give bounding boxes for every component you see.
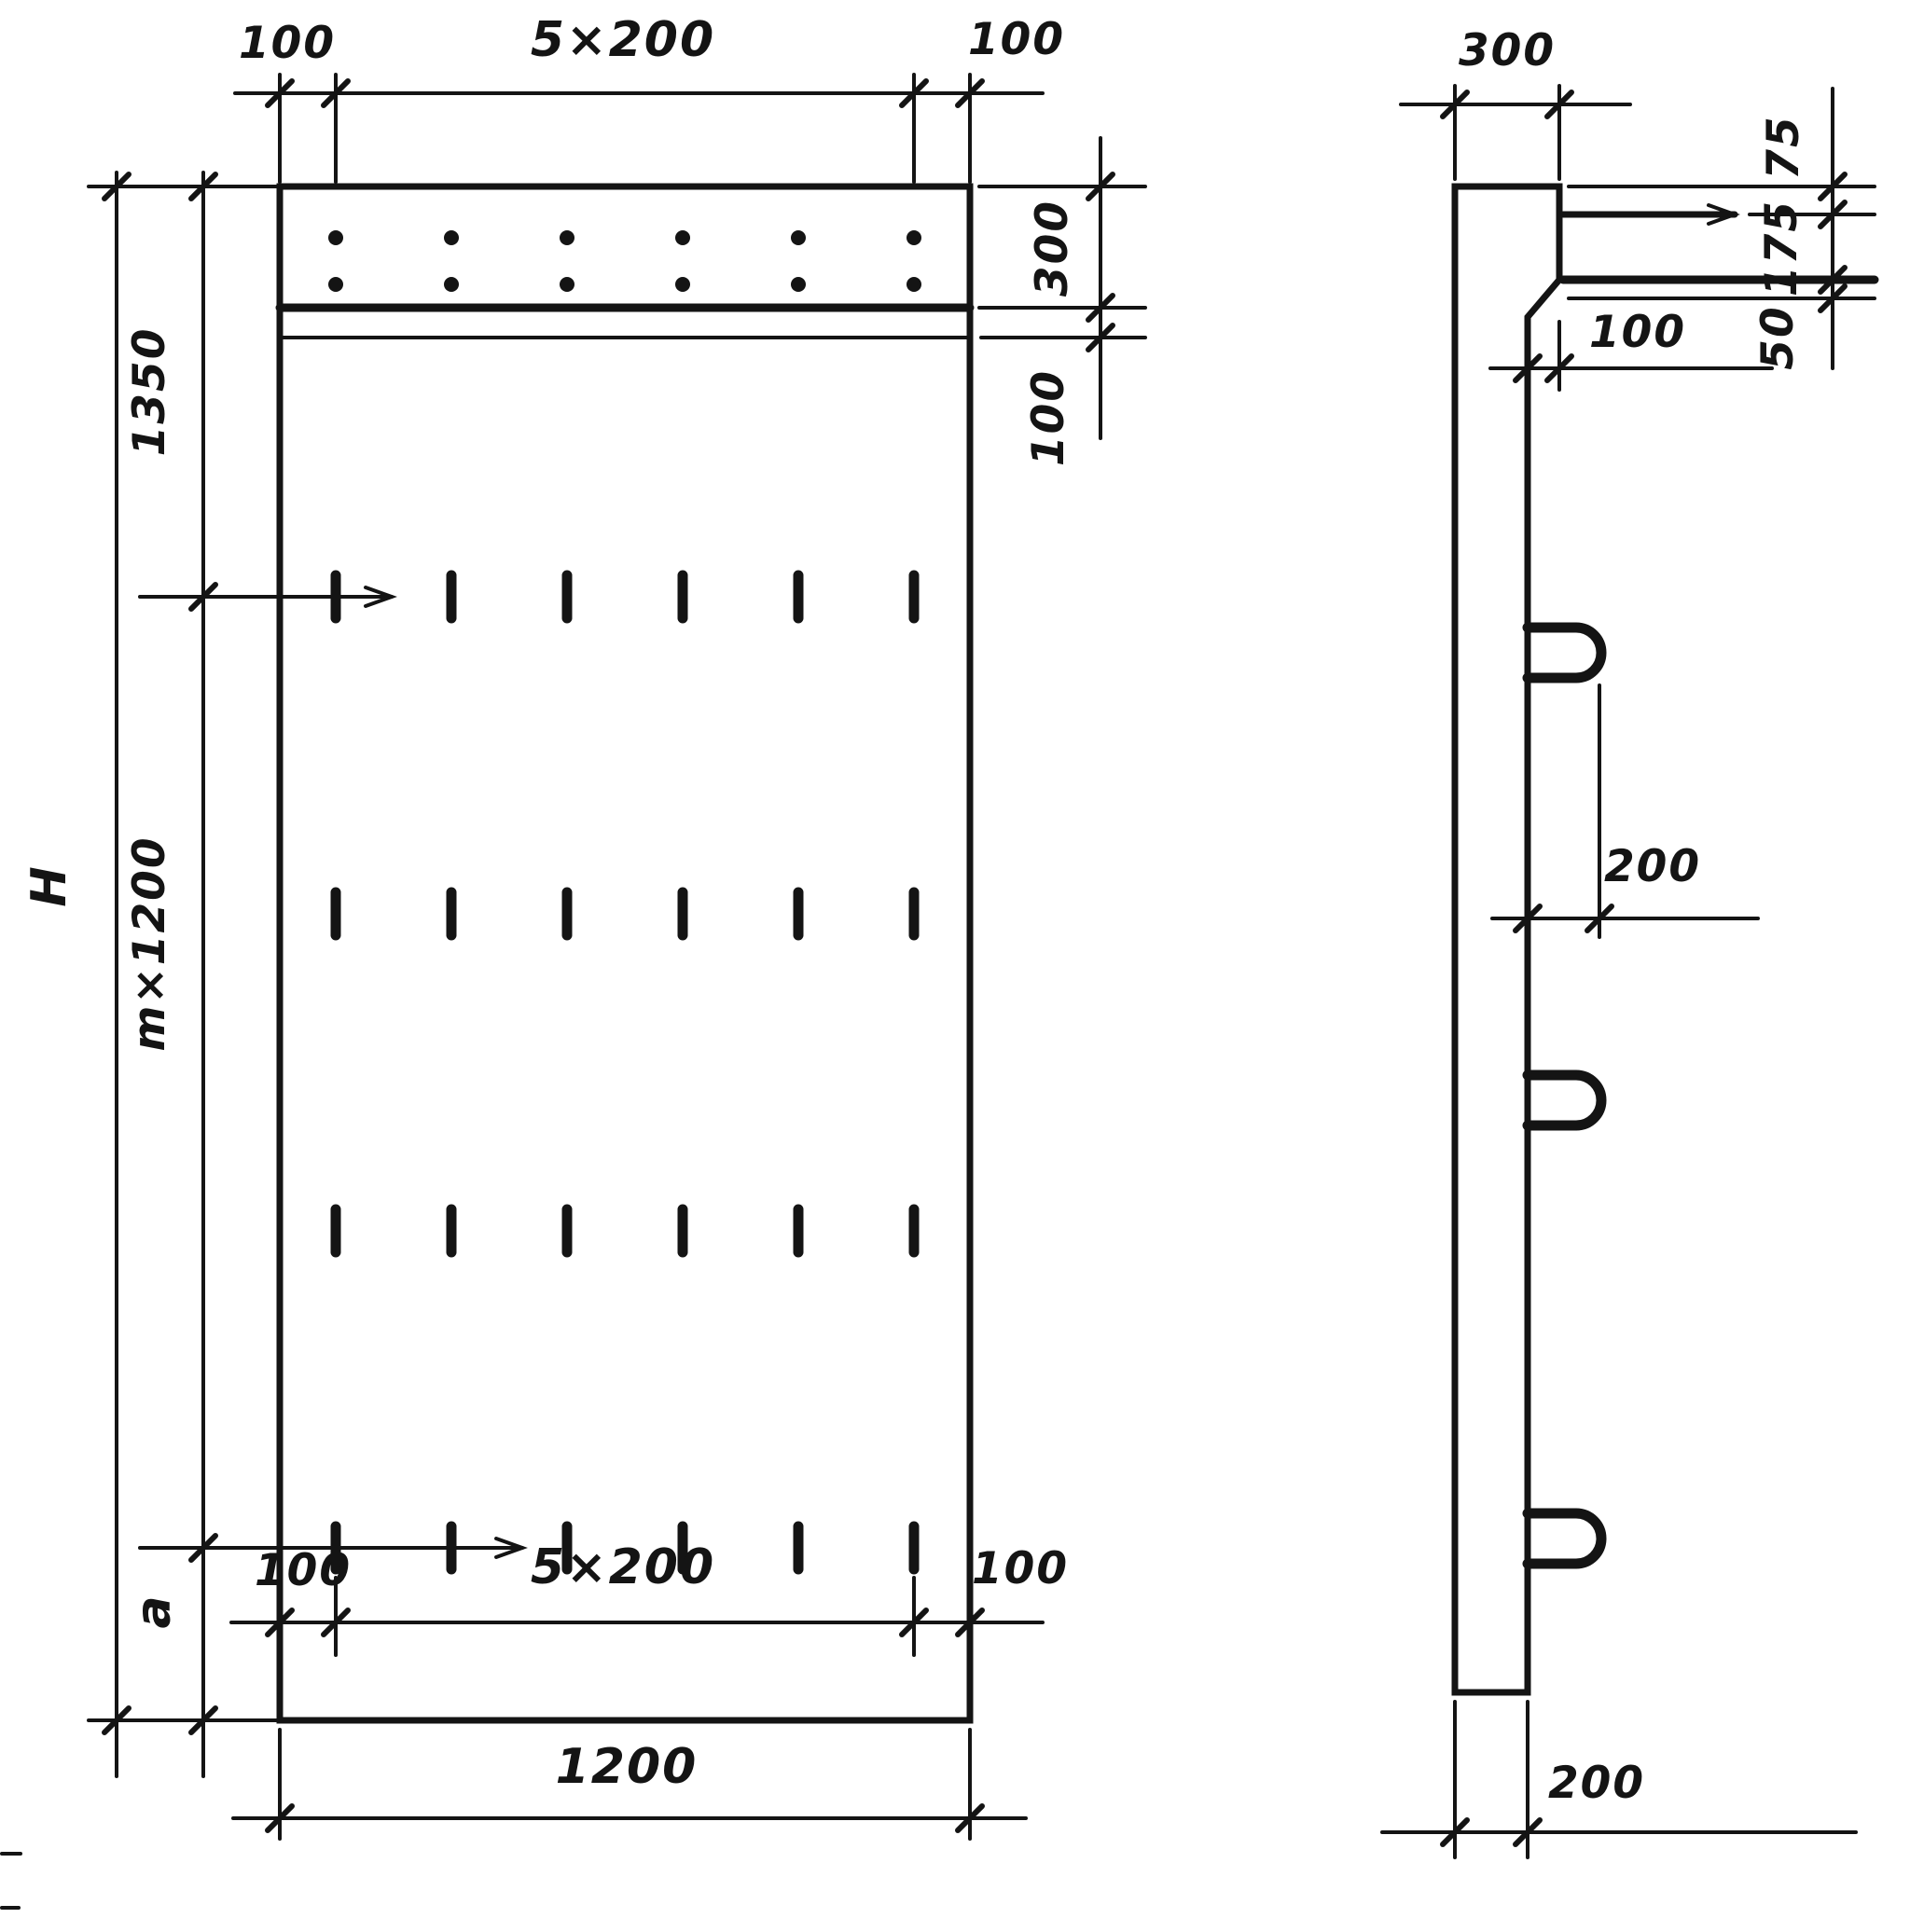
lifting-loop xyxy=(1528,1513,1601,1564)
hole-dot xyxy=(444,277,459,292)
hole-dot xyxy=(328,277,343,292)
dim-label-side-top-width: 300 xyxy=(1459,25,1556,76)
dim-label-bottom-right-edge: 100 xyxy=(972,1543,1069,1594)
lifting-loop xyxy=(1528,628,1601,678)
dim-label-bottom-hole-spacing: 5×200 xyxy=(531,1539,715,1595)
hole-dot xyxy=(907,277,921,292)
anchor-dash-rows xyxy=(336,575,914,1569)
side-panel-outline xyxy=(1455,186,1559,1692)
dim-label-band-height: 300 xyxy=(1027,200,1078,297)
dim-label-bottom-offset: a xyxy=(126,1594,182,1628)
hole-dot xyxy=(791,277,806,292)
front-dimensions: 100 5×200 100 300 100 1350 m×1200 H a xyxy=(21,12,1145,1839)
drawing-sheet: 100 5×200 100 300 100 1350 m×1200 H a xyxy=(0,0,1910,1932)
dim-label-loop-projection: 200 xyxy=(1604,841,1701,892)
dim-label-top-right-edge: 100 xyxy=(968,14,1065,65)
dim-label-top-offset: 1350 xyxy=(124,327,175,457)
dim-label-overall-height: H xyxy=(21,864,77,907)
dim-label-row-spacing: m×1200 xyxy=(124,835,175,1051)
dim-label-tongue-bottom: 50 xyxy=(1752,305,1804,369)
hole-dot xyxy=(675,230,690,245)
dim-label-bottom-left-edge: 100 xyxy=(255,1545,352,1596)
panel-drawing: 100 5×200 100 300 100 1350 m×1200 H a xyxy=(0,0,1910,1932)
dim-label-step-depth: 100 xyxy=(1589,307,1686,358)
dim-label-panel-thickness: 200 xyxy=(1548,1758,1645,1809)
dim-label-strip-height: 100 xyxy=(1023,369,1074,466)
dim-label-tongue-top: 75 xyxy=(1758,115,1809,179)
dim-label-tongue-middle: 175 xyxy=(1756,200,1807,297)
hole-dot xyxy=(328,230,343,245)
dim-label-top-left-edge: 100 xyxy=(239,18,336,69)
scan-artifacts xyxy=(2,1854,21,1908)
lifting-loop xyxy=(1528,1075,1601,1125)
hole-dot xyxy=(560,230,574,245)
dim-label-overall-width: 1200 xyxy=(556,1739,699,1795)
hole-dot xyxy=(675,277,690,292)
hole-dot xyxy=(560,277,574,292)
hole-dot xyxy=(444,230,459,245)
side-view xyxy=(1455,186,1875,1692)
hole-dot xyxy=(791,230,806,245)
front-panel-outline xyxy=(280,186,970,1720)
hole-dot xyxy=(907,230,921,245)
front-view xyxy=(280,186,970,1720)
dim-label-top-hole-spacing: 5×200 xyxy=(531,12,715,68)
top-band-holes xyxy=(328,230,921,292)
